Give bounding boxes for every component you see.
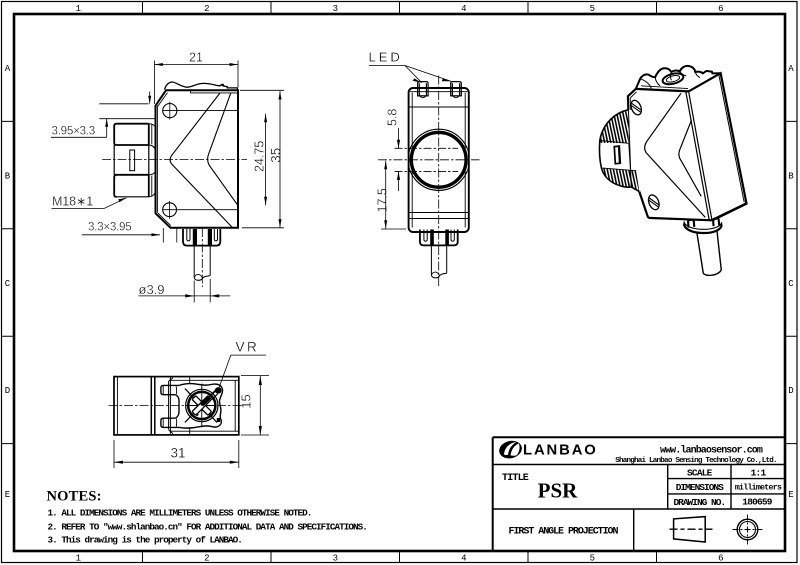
svg-text:24.75: 24.75 <box>252 141 266 172</box>
svg-text:3: 3 <box>333 554 338 564</box>
svg-text:C: C <box>5 279 11 289</box>
svg-text:180659: 180659 <box>742 496 773 507</box>
svg-text:E: E <box>5 490 10 500</box>
svg-text:LED: LED <box>369 50 403 65</box>
svg-text:5: 5 <box>590 4 595 14</box>
svg-text:D: D <box>788 386 793 396</box>
svg-text:Shanghai Lanbao Sensing Techno: Shanghai Lanbao Sensing Technology Co.,L… <box>615 457 777 465</box>
svg-text:6: 6 <box>718 554 723 564</box>
svg-text:millimeters: millimeters <box>735 482 782 492</box>
svg-text:6: 6 <box>718 4 723 14</box>
svg-text:1: 1 <box>76 554 81 564</box>
svg-text:LANBAO: LANBAO <box>523 443 598 459</box>
svg-text:2: 2 <box>204 4 209 14</box>
svg-text:1. ALL DIMENSIONS ARE MILLIMET: 1. ALL DIMENSIONS ARE MILLIMETERS UNLESS… <box>48 508 312 519</box>
svg-text:3: 3 <box>333 4 338 14</box>
svg-text:3. This drawing is the propert: 3. This drawing is the property of LANBA… <box>48 535 242 546</box>
svg-text:A: A <box>5 64 11 74</box>
svg-text:FIRST ANGLE PROJECTION: FIRST ANGLE PROJECTION <box>509 527 619 538</box>
svg-text:31: 31 <box>170 446 185 461</box>
svg-text:1:1: 1:1 <box>751 467 767 478</box>
svg-text:A: A <box>788 64 794 74</box>
svg-text:D: D <box>5 386 10 396</box>
svg-text:15: 15 <box>239 394 254 408</box>
svg-text:C: C <box>788 279 794 289</box>
svg-text:DRAWING NO.: DRAWING NO. <box>673 497 725 508</box>
svg-text:ø3.9: ø3.9 <box>139 282 165 297</box>
svg-text:21: 21 <box>189 51 203 65</box>
svg-text:4: 4 <box>461 554 466 564</box>
svg-text:3.3×3.95: 3.3×3.95 <box>88 221 131 234</box>
svg-text:3.95×3.3: 3.95×3.3 <box>52 125 95 138</box>
svg-text:TITLE: TITLE <box>502 473 529 484</box>
svg-text:E: E <box>788 490 793 500</box>
svg-text:M18∗1: M18∗1 <box>52 195 93 209</box>
svg-text:35: 35 <box>269 148 284 163</box>
svg-text:B: B <box>5 171 11 181</box>
svg-text:4: 4 <box>461 4 466 14</box>
svg-text:www.lanbaosensor.com: www.lanbaosensor.com <box>660 445 763 457</box>
svg-text:PSR: PSR <box>538 479 579 503</box>
svg-text:B: B <box>788 171 794 181</box>
svg-text:2. REFER TO ″www.shlanbao.cn″: 2. REFER TO ″www.shlanbao.cn″ FOR ADDITI… <box>48 522 367 533</box>
svg-text:5: 5 <box>590 554 595 564</box>
svg-text:SCALE: SCALE <box>687 467 713 478</box>
svg-text:17.5: 17.5 <box>375 188 389 212</box>
svg-text:DIMENSIONS: DIMENSIONS <box>676 482 724 493</box>
svg-text:NOTES:: NOTES: <box>47 489 102 505</box>
svg-text:2: 2 <box>204 554 209 564</box>
svg-text:VR: VR <box>236 340 260 355</box>
svg-text:1: 1 <box>76 4 81 14</box>
svg-text:5.8: 5.8 <box>386 109 400 126</box>
